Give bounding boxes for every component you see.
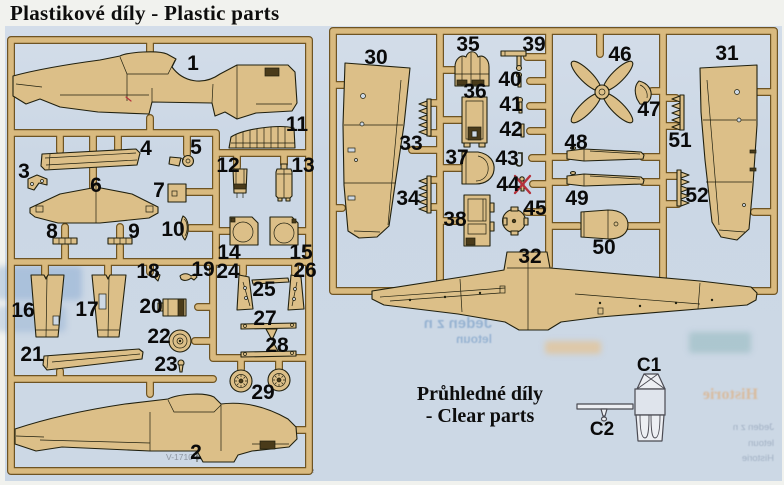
part-38-label: 38 (443, 208, 467, 231)
part-7-label: 7 (153, 179, 165, 202)
part-17-label: 17 (75, 298, 98, 321)
part-33-exhaust (419, 99, 431, 136)
part-37-label: 37 (445, 146, 468, 169)
part-c2-label: C2 (590, 419, 614, 440)
part-2-fuselage-half (15, 394, 297, 462)
part-13-label: 13 (291, 154, 314, 177)
part-c1-canopy (635, 374, 665, 441)
part-6-label: 6 (90, 174, 102, 197)
part-46-propeller (568, 58, 637, 127)
part-20-label: 20 (139, 295, 162, 318)
part-34-label: 34 (396, 187, 420, 210)
clear-parts: C1 C2 (577, 355, 665, 441)
part-47-label: 47 (637, 98, 660, 121)
part-51-label: 51 (668, 129, 692, 152)
part-27-label: 27 (253, 307, 276, 330)
part-36 (462, 97, 487, 147)
part-3 (28, 175, 47, 190)
part-36-label: 36 (463, 80, 486, 103)
part-4 (41, 149, 140, 170)
part-34-exhaust (419, 176, 431, 213)
part-5-label: 5 (190, 136, 202, 159)
part-21 (43, 349, 143, 370)
part-52-label: 52 (685, 184, 708, 207)
part-25-label: 25 (252, 278, 276, 301)
part-12-label: 12 (216, 154, 239, 177)
part-23 (178, 360, 184, 372)
part-32-lower-wing (372, 252, 757, 330)
part-48-label: 48 (564, 131, 588, 154)
part-35-label: 35 (456, 33, 480, 56)
part-8-label: 8 (46, 220, 58, 243)
part-16-label: 16 (11, 299, 34, 322)
part-22 (169, 330, 191, 352)
part-41-label: 41 (499, 93, 523, 116)
part-11-label: 11 (286, 113, 309, 136)
part-46-label: 46 (608, 43, 631, 66)
part-49-label: 49 (565, 187, 588, 210)
part-9-label: 9 (128, 220, 140, 243)
part-1-label: 1 (187, 52, 199, 75)
sprue-diagram: 1 2 3 4 5 6 7 8 9 10 11 12 13 14 15 16 1… (0, 0, 784, 485)
part-2-label: 2 (190, 441, 202, 464)
part-50-intake (581, 210, 628, 239)
part-42-label: 42 (499, 118, 522, 141)
part-40-label: 40 (498, 68, 521, 91)
part-23-label: 23 (154, 353, 177, 376)
part-3-label: 3 (18, 160, 30, 183)
part-50-label: 50 (592, 236, 615, 259)
part-4-label: 4 (140, 137, 152, 160)
part-16 (31, 275, 64, 337)
part-10-label: 10 (161, 218, 184, 241)
part-33-label: 33 (399, 132, 422, 155)
part-39-label: 39 (522, 33, 545, 56)
part-28-label: 28 (265, 334, 289, 357)
part-c1-label: C1 (637, 355, 662, 376)
part-1-fuselage-half (13, 52, 297, 119)
part-45-label: 45 (523, 197, 547, 220)
part-49 (567, 172, 644, 187)
part-44-label: 44 (496, 173, 520, 196)
part-31-label: 31 (715, 42, 739, 65)
part-32-label: 32 (518, 245, 541, 268)
sprue-a: 1 2 3 4 5 6 7 8 9 10 11 12 13 14 15 16 1… (11, 52, 316, 464)
part-21-label: 21 (20, 343, 44, 366)
part-7 (168, 184, 186, 202)
part-38 (464, 195, 494, 246)
part-22-label: 22 (147, 325, 170, 348)
part-19-label: 19 (191, 258, 214, 281)
part-31-wing-panel (700, 65, 757, 240)
part-43-label: 43 (495, 147, 518, 170)
part-13-tank (276, 164, 292, 201)
part-24-label: 24 (216, 260, 240, 283)
part-18-label: 18 (136, 260, 160, 283)
part-30-label: 30 (364, 46, 387, 69)
part-26-label: 26 (293, 259, 316, 282)
part-29-label: 29 (251, 381, 274, 404)
